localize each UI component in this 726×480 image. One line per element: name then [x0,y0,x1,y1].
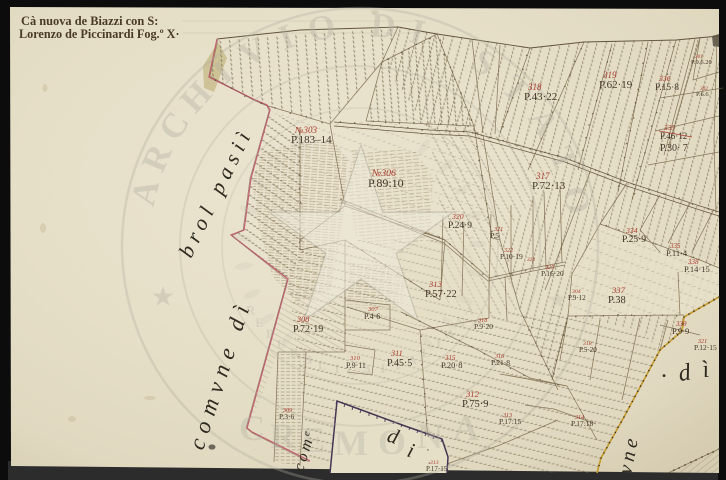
svg-text:P.75·9: P.75·9 [462,399,489,410]
svg-text:P.5: P.5 [490,231,499,240]
svg-text:P.25·9: P.25·9 [622,235,646,245]
svg-text:D: D [369,5,398,46]
svg-text:C: C [239,408,265,448]
svg-text:A: A [453,408,479,448]
svg-text:P.43·22: P.43·22 [524,91,557,103]
svg-text:P.17:18: P.17:18 [571,419,594,428]
svg-text:334: 334 [625,226,638,235]
svg-text:L: L [422,346,430,360]
svg-text:P.9·20: P.9·20 [474,322,493,331]
svg-text:A: A [465,303,474,317]
svg-text:P.62·19: P.62·19 [599,79,633,91]
svg-text:E: E [255,316,263,330]
svg-text:P: P [266,327,274,341]
svg-text:Lorenzo de Piccinardi Fog.º X·: Lorenzo de Piccinardi Fog.º X· [19,27,180,41]
svg-text:I: I [436,337,441,351]
svg-text:U: U [277,337,286,351]
svg-text:P.5·20: P.5·20 [579,346,597,354]
svg-text:324: 324 [527,257,535,263]
svg-text:P.11·4: P.11·4 [666,248,688,258]
svg-text:P.9.6.20: P.9.6.20 [691,59,712,66]
svg-text:R: R [270,416,297,456]
svg-text:P.4·6: P.4·6 [364,312,380,321]
svg-text:313: 313 [428,279,442,289]
svg-text:P.6.6: P.6.6 [696,91,709,98]
svg-text:336: 336 [658,74,671,83]
svg-text:337: 337 [611,285,626,295]
svg-text:P.16·20: P.16·20 [541,269,564,278]
svg-text:Cà nuova de Biazzi con S:: Cà nuova de Biazzi con S: [21,14,158,28]
svg-text:P.3·6: P.3·6 [279,412,294,421]
svg-text:P.9·11: P.9·11 [346,361,366,370]
svg-text:P.15·8: P.15·8 [655,83,679,93]
svg-text:P.17:15: P.17:15 [499,417,522,426]
svg-text:I: I [335,362,340,376]
svg-text:311: 311 [390,349,403,358]
svg-text:P.12·15: P.12·15 [694,343,717,352]
svg-text:N: N [456,316,465,330]
svg-text:B: B [304,353,312,367]
svg-text:P.24·9: P.24·9 [448,221,472,231]
svg-text:P.38: P.38 [608,295,626,306]
svg-text:P.30· 7: P.30· 7 [660,143,688,154]
svg-text:P.17·15: P.17·15 [426,465,448,473]
svg-text:P.9·9: P.9·9 [672,326,689,336]
svg-text:B: B [290,346,298,360]
svg-text:P.72·19: P.72·19 [293,324,323,335]
svg-text:A: A [446,327,455,341]
svg-text:P.72·13: P.72·13 [532,180,566,192]
svg-text:308: 308 [296,315,309,324]
svg-text:P.10·19: P.10·19 [500,252,523,261]
svg-text:P.14·15: P.14·15 [684,264,710,274]
svg-text:P.46·12: P.46·12 [660,131,687,141]
svg-text:P.45·5: P.45·5 [387,358,412,369]
svg-text:M: M [334,423,368,463]
svg-text:P.20·8: P.20·8 [441,360,463,370]
svg-text:N: N [417,416,443,456]
svg-text:312: 312 [465,389,480,399]
svg-text:320: 320 [451,212,464,221]
svg-text:P.21·8: P.21·8 [491,358,510,367]
svg-text:P.57·22: P.57·22 [425,289,457,300]
svg-text:I: I [380,362,385,376]
svg-text:P.183–14: P.183–14 [291,134,332,146]
svg-text:L: L [318,358,326,372]
svg-text:P.9·12: P.9·12 [568,294,586,302]
svg-text:P.89:10: P.89:10 [368,176,404,190]
